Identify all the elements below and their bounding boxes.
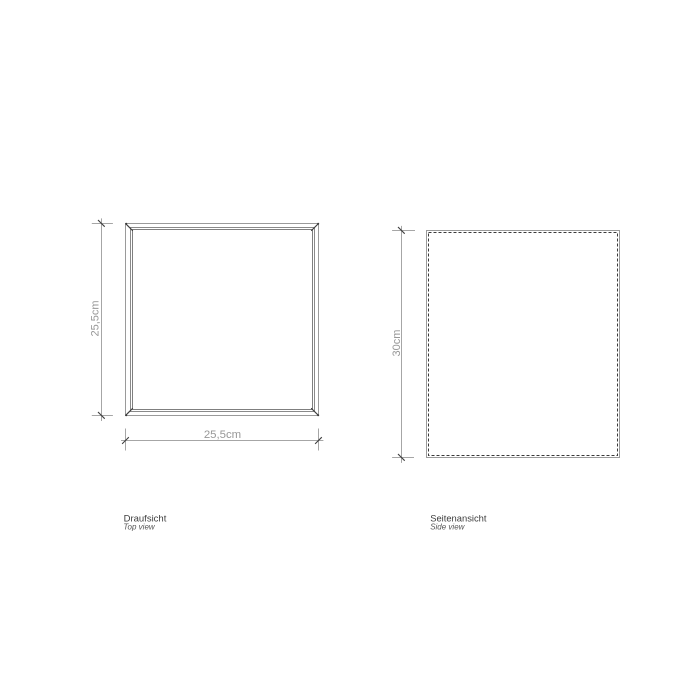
svg-text:30cm: 30cm: [391, 330, 403, 357]
svg-text:25,5cm: 25,5cm: [204, 429, 241, 441]
svg-text:Side view: Side view: [430, 523, 465, 532]
svg-text:25,5cm: 25,5cm: [90, 300, 102, 336]
svg-text:Top view: Top view: [123, 522, 155, 531]
